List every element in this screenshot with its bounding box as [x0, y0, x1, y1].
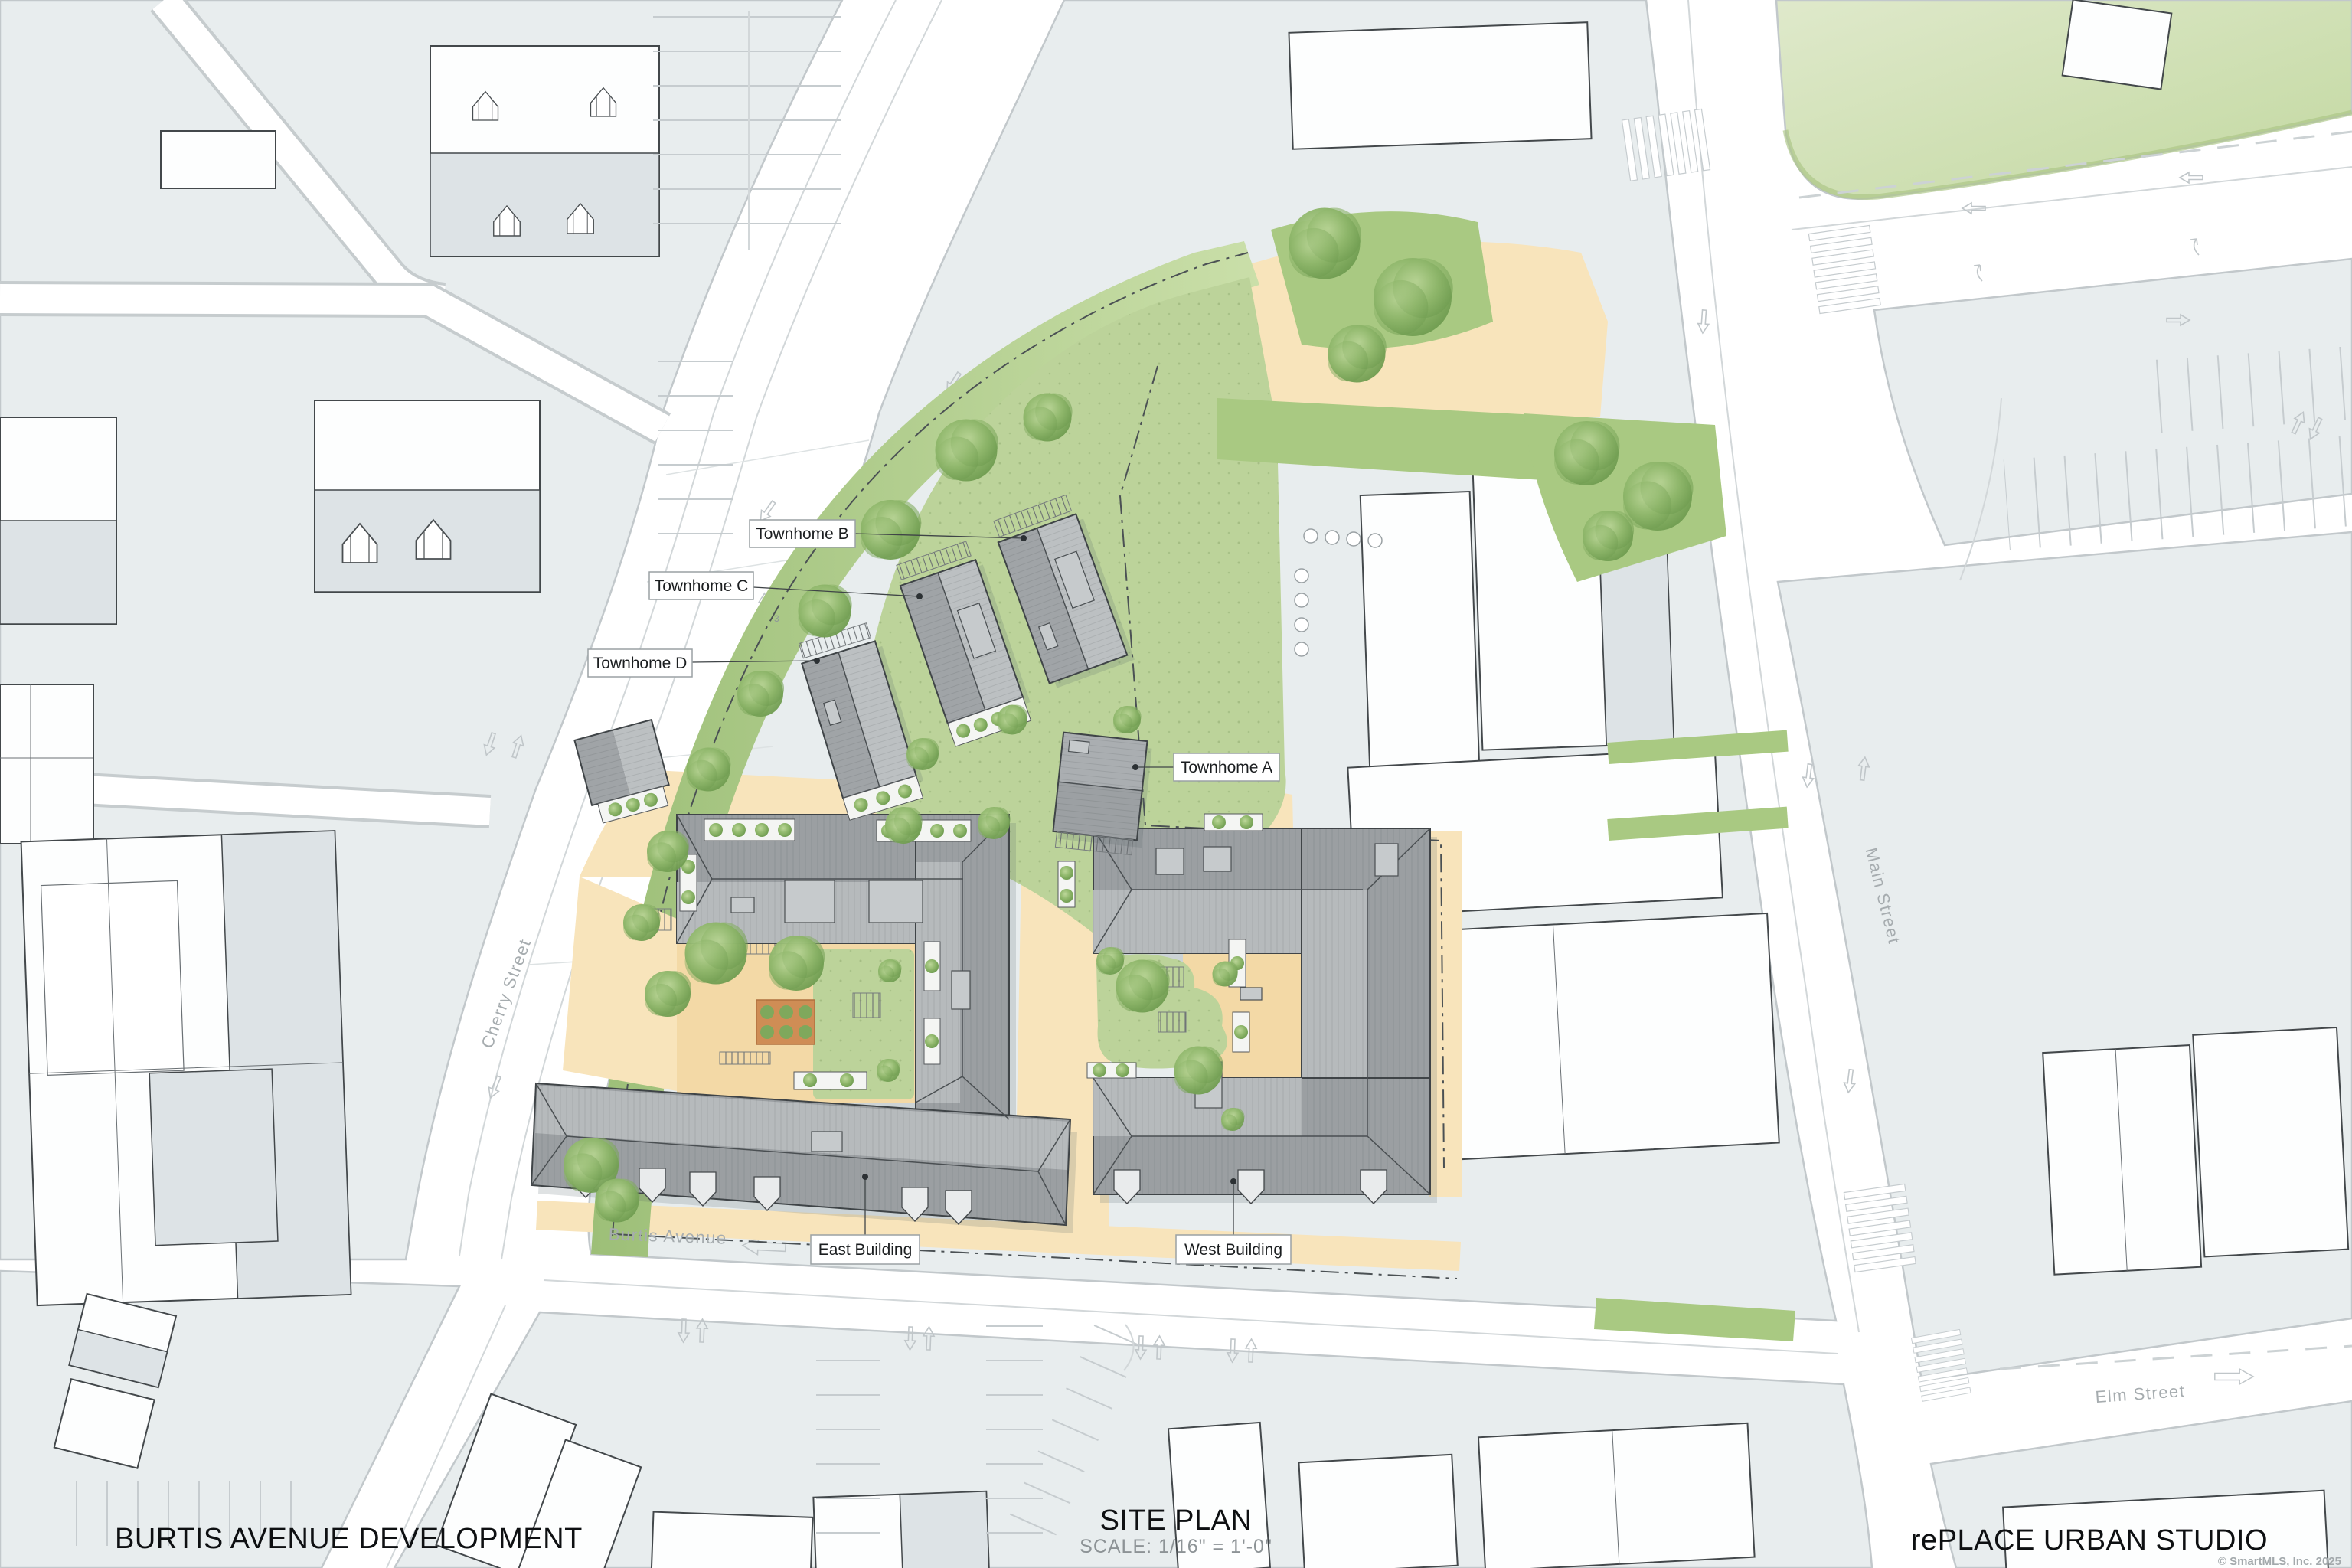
- west-building: [1058, 814, 1437, 1204]
- street-name-cherry: Cherry Street: [477, 936, 534, 1051]
- park-building: [2063, 0, 2172, 90]
- existing-building-south-2: [1442, 913, 1779, 1160]
- parcel-number: 3: [774, 613, 779, 624]
- project-title: BURTIS AVENUE DEVELOPMENT: [115, 1523, 583, 1555]
- label-east-building-text: East Building: [818, 1241, 913, 1259]
- stairs: [1158, 1012, 1186, 1032]
- street-name-elm: Elm Street: [2095, 1381, 2186, 1406]
- firm-name: rePLACE URBAN STUDIO: [1911, 1524, 2268, 1557]
- drawing-scale: SCALE: 1/16" = 1'-0": [1080, 1536, 1272, 1557]
- context-buildings-east: [2043, 1027, 2349, 1275]
- label-townhome-d-text: Townhome D: [593, 655, 688, 672]
- existing-building-north: [1289, 22, 1591, 149]
- community-garden: [756, 1000, 815, 1044]
- context-building-nw-1: [430, 46, 659, 256]
- context-apartment-complex: [21, 831, 351, 1305]
- copyright-note: © SmartMLS, Inc. 2025: [2218, 1555, 2341, 1568]
- townhome-a-building: [1051, 733, 1152, 856]
- drawing-title: SITE PLAN: [1100, 1504, 1253, 1537]
- crosswalk-main-north: [1808, 225, 1880, 313]
- stairs: [853, 993, 880, 1018]
- context-building-nw-3: [161, 131, 276, 188]
- label-townhome-a-text: Townhome A: [1181, 759, 1272, 776]
- context-building-west-edge-2: [0, 684, 93, 844]
- crosswalk-main-burtis: [1844, 1184, 1916, 1272]
- label-townhome-c-text: Townhome C: [655, 577, 749, 595]
- context-building-nw-2: [315, 400, 540, 592]
- site-plan-sheet: 3: [0, 0, 2352, 1568]
- label-townhome-b-text: Townhome B: [756, 525, 848, 543]
- label-west-building-text: West Building: [1184, 1241, 1282, 1259]
- stairs: [720, 1052, 770, 1064]
- context-building-west-edge-1: [0, 417, 116, 624]
